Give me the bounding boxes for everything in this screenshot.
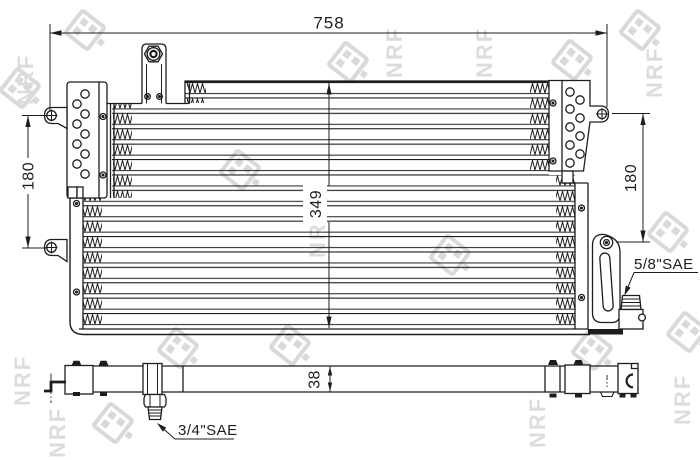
left-mounting-tab-upper xyxy=(45,108,68,129)
dim-core-height-text: 349 xyxy=(308,190,325,218)
clip-icon xyxy=(548,360,558,365)
left-mounting-tab-lower xyxy=(45,240,68,262)
dim-left-height-text: 180 xyxy=(21,162,38,190)
dim-right-height-text: 180 xyxy=(623,164,640,192)
label-upper-fitting: 5/8"SAE xyxy=(624,256,698,296)
drawing-svg: NRF NRF NRF NRF NRF NRF NRF NRF NRF xyxy=(0,0,700,460)
upper-fitting-5-8-sae xyxy=(619,296,645,330)
lower-fitting-label-text: 3/4"SAE xyxy=(178,422,238,439)
lower-fitting-3-4-sae xyxy=(143,364,166,420)
bottom-left-hook xyxy=(44,374,66,404)
nrf-dice-icon xyxy=(93,403,139,448)
right-mounting-plate xyxy=(549,81,609,184)
watermark-text: NRF xyxy=(642,47,667,98)
watermark-text: NRF xyxy=(382,27,407,78)
watermark-text: NRF xyxy=(13,54,38,105)
right-mounting-arm xyxy=(592,234,620,322)
condenser-technical-drawing: NRF NRF NRF NRF NRF NRF NRF NRF NRF xyxy=(0,0,700,460)
bolt-icon xyxy=(145,46,163,62)
dim-left-height: 180 xyxy=(21,116,47,249)
clip-icon xyxy=(99,361,109,366)
dim-right-height: 180 xyxy=(612,114,650,243)
nrf-dice-icon xyxy=(270,325,316,370)
dim-depth-text: 38 xyxy=(307,370,324,389)
upper-fitting-label-text: 5/8"SAE xyxy=(634,256,694,273)
watermark-text: NRF xyxy=(45,407,70,458)
nrf-dice-icon xyxy=(552,40,598,85)
watermark-text: NRF xyxy=(10,355,35,406)
watermark-text: NRF xyxy=(472,27,497,78)
front-view xyxy=(45,44,646,335)
watermark-text: NRF xyxy=(670,374,695,425)
dim-depth: 38 xyxy=(307,367,333,392)
dim-overall-width-text: 758 xyxy=(313,14,344,33)
nrf-dice-icon xyxy=(667,312,700,357)
nrf-dice-icon xyxy=(648,212,694,257)
label-lower-fitting: 3/4"SAE xyxy=(157,422,238,439)
top-mounting-bracket xyxy=(142,44,166,104)
clip-icon xyxy=(72,361,82,366)
watermark-text: NRF xyxy=(525,397,550,448)
